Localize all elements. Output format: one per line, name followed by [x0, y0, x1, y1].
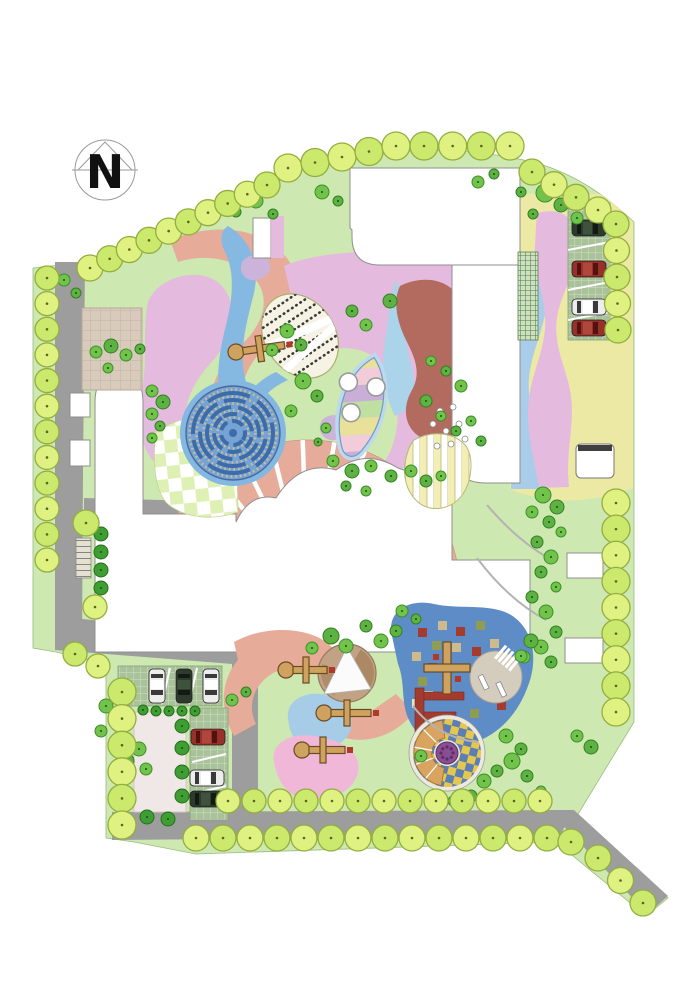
shrub-dot [365, 490, 367, 492]
shrub-dot [531, 511, 533, 513]
perimeter-tree [83, 595, 107, 619]
car-white [203, 669, 219, 703]
tree-center [287, 167, 290, 170]
tree-center [539, 800, 542, 803]
shrub [341, 481, 351, 491]
car-windshield [593, 222, 598, 234]
shrub-dot [63, 279, 65, 281]
perimeter-tree [35, 266, 59, 290]
bridge-bar [293, 667, 327, 674]
shrub [360, 620, 372, 632]
shrub [374, 634, 388, 648]
shrub-dot [159, 425, 161, 427]
tree-center [167, 230, 170, 233]
perimeter-tree [630, 890, 656, 916]
tree-center [121, 797, 124, 800]
shrub-dot [380, 640, 382, 642]
shrub [385, 470, 397, 482]
shrub-dot [181, 771, 183, 773]
tree-center [383, 800, 386, 803]
car-roof [201, 793, 210, 806]
bridge-bar [331, 710, 371, 717]
car-windshield [211, 793, 216, 805]
perimeter-tree [608, 868, 634, 894]
tree-center [615, 580, 618, 583]
shrub-dot [520, 655, 522, 657]
tree-center [509, 145, 512, 148]
red-step [455, 676, 461, 682]
perimeter-tree [410, 132, 438, 160]
shrub [584, 740, 598, 754]
tree-center [615, 554, 618, 557]
perimeter-tree [439, 132, 467, 160]
shrub [135, 344, 145, 354]
shrub-dot [95, 351, 97, 353]
perimeter-tree [294, 789, 318, 813]
shrub-dot [151, 413, 153, 415]
tree-center [305, 800, 308, 803]
tile [490, 639, 499, 648]
perimeter-tree [274, 154, 302, 182]
shrub-dot [542, 494, 544, 496]
shrub-dot [365, 625, 367, 627]
shrub-dot [540, 646, 542, 648]
tree-center [249, 837, 252, 840]
perimeter-tree [237, 825, 263, 851]
car-roof [201, 772, 210, 785]
car-roof [151, 680, 164, 689]
shrub [95, 725, 107, 737]
car-rear-window [577, 322, 581, 334]
shrub [190, 706, 200, 716]
tree-center [597, 857, 600, 860]
tree-center [89, 267, 92, 270]
perimeter-tree [453, 825, 479, 851]
shrub [571, 212, 583, 224]
perimeter-tree [35, 522, 59, 546]
red-step [329, 667, 335, 673]
perimeter-tree [108, 678, 136, 706]
perimeter-tree [73, 510, 99, 536]
tree-center [575, 196, 578, 199]
perimeter-tree [602, 567, 630, 595]
compass: N [72, 140, 138, 200]
shrub [491, 765, 503, 777]
shrub-dot [455, 430, 457, 432]
tree-center [121, 717, 124, 720]
tree-center [121, 771, 124, 774]
perimeter-tree [467, 132, 495, 160]
shrub [516, 187, 526, 197]
shrub [120, 349, 132, 361]
perimeter-tree [450, 789, 474, 813]
shrub-dot [316, 395, 318, 397]
tree-center [619, 879, 622, 882]
building-porch-2 [70, 440, 90, 466]
tree-center [46, 431, 49, 434]
perimeter-tree [603, 211, 629, 237]
tile [472, 647, 481, 656]
shrub [426, 356, 436, 366]
tree-center [227, 800, 230, 803]
shrub-dot [168, 710, 170, 712]
perimeter-tree [502, 789, 526, 813]
shrub [526, 591, 538, 603]
perimeter-tree [35, 394, 59, 418]
shrub-dot [520, 191, 522, 193]
perimeter-tree [291, 825, 317, 851]
shrub [164, 706, 174, 716]
car-red [572, 261, 606, 277]
shrub-dot [477, 181, 479, 183]
kiosk-roof [578, 445, 612, 451]
landscape-site-plan: N [0, 0, 699, 989]
shrub [104, 339, 118, 353]
shrub [528, 209, 538, 219]
tree-center [46, 533, 49, 536]
shrub [345, 464, 359, 478]
flower-dot [450, 747, 453, 750]
shrub [268, 209, 278, 219]
car-roof [202, 731, 211, 744]
shrub [390, 625, 402, 637]
car-white [149, 669, 165, 703]
shrub-dot [100, 569, 102, 571]
building-porch-1 [70, 393, 90, 417]
tree-center [46, 302, 49, 305]
shrub-dot [325, 427, 327, 429]
tile [452, 643, 461, 652]
shrub-dot [302, 380, 304, 382]
shrub [346, 305, 358, 317]
shrub-dot [231, 699, 233, 701]
shrub-dot [401, 610, 403, 612]
shrub-dot [145, 768, 147, 770]
tree-center [531, 171, 534, 174]
perimeter-tree [604, 264, 630, 290]
shrub [455, 380, 467, 392]
perimeter-tree [372, 825, 398, 851]
shrub [280, 324, 294, 338]
shrub [524, 634, 538, 648]
red-step [433, 654, 439, 660]
tree-center [121, 824, 124, 827]
tree-center [46, 507, 49, 510]
shrub-dot [317, 441, 319, 443]
shrub-dot [480, 440, 482, 442]
stepping-stone [462, 436, 468, 442]
perimeter-tree [605, 317, 631, 343]
shrub-dot [395, 630, 397, 632]
shrub-dot [300, 344, 302, 346]
stepping-stone [443, 428, 449, 434]
shrub-dot [531, 596, 533, 598]
shrub [306, 642, 318, 654]
perimeter-tree [210, 825, 236, 851]
shrub-dot [540, 571, 542, 573]
tree-center [46, 482, 49, 485]
shrub-dot [440, 415, 442, 417]
shrub-dot [100, 587, 102, 589]
flower-dot [441, 747, 444, 750]
shrub-dot [548, 521, 550, 523]
flower-dot [450, 756, 453, 759]
shrub [103, 363, 113, 373]
trellis-strip [518, 252, 538, 340]
perimeter-tree [528, 789, 552, 813]
tree-center [615, 223, 618, 226]
perimeter-tree [602, 515, 630, 543]
tree-center [357, 837, 360, 840]
perimeter-tree [264, 825, 290, 851]
shrub [94, 545, 108, 559]
tree-center [314, 161, 317, 164]
shrub-dot [345, 645, 347, 647]
tree-center [513, 800, 516, 803]
shrub [535, 487, 551, 503]
car-white [190, 770, 224, 786]
shrub-dot [75, 292, 77, 294]
perimeter-tree [301, 149, 329, 177]
perimeter-tree [602, 620, 630, 648]
perimeter-tree [35, 471, 59, 495]
shrub-dot [410, 470, 412, 472]
tree-center [615, 502, 618, 505]
shrub [441, 366, 451, 376]
perimeter-tree [216, 789, 240, 813]
tree-center [384, 837, 387, 840]
car-roof [583, 301, 592, 314]
shrub [71, 288, 81, 298]
flower-dot [445, 745, 448, 748]
tree-center [97, 665, 100, 668]
tree-center [46, 328, 49, 331]
shrub-dot [181, 795, 183, 797]
tree-center [74, 653, 77, 656]
shrub [266, 344, 278, 356]
shrub [550, 626, 562, 638]
red-step [347, 747, 353, 753]
tree-center [615, 249, 618, 252]
shrub-dot [181, 747, 183, 749]
shrub [543, 516, 555, 528]
perimeter-tree [602, 594, 630, 622]
shrub [415, 750, 427, 762]
shrub-dot [138, 748, 140, 750]
shrub [58, 274, 70, 286]
shrub [314, 438, 322, 446]
shrub-dot [142, 709, 144, 711]
shrub-dot [125, 354, 127, 356]
shrub [146, 408, 158, 420]
shrub-dot [321, 191, 323, 193]
tree-center [276, 837, 279, 840]
tree-center [615, 658, 618, 661]
tree-center [148, 239, 151, 242]
tree-center [94, 606, 97, 609]
tree-center [411, 837, 414, 840]
shrub-dot [162, 401, 164, 403]
shrub-dot [550, 556, 552, 558]
shrub-dot [496, 770, 498, 772]
maze-center [229, 429, 237, 437]
shrub [383, 294, 397, 308]
shrub [571, 730, 583, 742]
shrub [515, 650, 527, 662]
shrub [315, 185, 329, 199]
perimeter-tree [108, 758, 136, 786]
perimeter-tree [604, 238, 630, 264]
tree-center [642, 902, 645, 905]
tile [438, 621, 447, 630]
tile [432, 641, 441, 650]
shrub-dot [194, 710, 196, 712]
tree-center [546, 837, 549, 840]
shrub-dot [556, 506, 558, 508]
shrub [241, 687, 251, 697]
tree-center [121, 691, 124, 694]
perimeter-tree [35, 369, 59, 393]
car-roof [205, 680, 218, 689]
shrub [515, 743, 527, 755]
tile [456, 627, 465, 636]
red-step [286, 341, 293, 348]
tree-center [331, 800, 334, 803]
flower-dot [445, 757, 448, 760]
tree-center [121, 744, 124, 747]
shrub [411, 614, 421, 624]
tree-center [615, 528, 618, 531]
perimeter-tree [476, 789, 500, 813]
shrub-dot [505, 735, 507, 737]
perimeter-tree [424, 789, 448, 813]
shrub-dot [167, 818, 169, 820]
tree-center [246, 193, 249, 196]
shrub [90, 346, 102, 358]
slide-head [278, 662, 294, 678]
tree-center [616, 276, 619, 279]
shrub [451, 426, 461, 436]
shrub-dot [105, 705, 107, 707]
tile [418, 628, 427, 637]
tree-center [553, 183, 556, 186]
shrub [361, 486, 371, 496]
shrub [405, 465, 417, 477]
perimeter-tree [86, 654, 110, 678]
shrub-dot [550, 661, 552, 663]
shrub-dot [576, 735, 578, 737]
shrub-dot [532, 213, 534, 215]
shrub-dot [590, 746, 592, 748]
tree-center [85, 522, 88, 525]
shrub [556, 527, 566, 537]
tree-center [46, 559, 49, 562]
tree-center [253, 800, 256, 803]
car-windshield [211, 772, 216, 784]
shrub-dot [271, 349, 273, 351]
perimeter-tree [108, 784, 136, 812]
shrub [333, 196, 343, 206]
car-windshield [593, 263, 598, 275]
tree-center [330, 837, 333, 840]
tree-center [438, 837, 441, 840]
shrub [545, 656, 557, 668]
shrub-dot [530, 640, 532, 642]
tree-center [46, 277, 49, 280]
tree-center [357, 800, 360, 803]
perimeter-tree [35, 292, 59, 316]
shrub-dot [107, 367, 109, 369]
shrub-dot [470, 420, 472, 422]
shrub [175, 719, 189, 733]
tree-center [108, 257, 111, 260]
shrub [539, 605, 553, 619]
building-annex-2 [565, 638, 603, 663]
shrub [327, 455, 339, 467]
shrub [504, 753, 520, 769]
shrub-dot [430, 360, 432, 362]
tile [418, 677, 427, 686]
building-topleft [253, 218, 271, 258]
shrub [94, 563, 108, 577]
shrub [140, 763, 152, 775]
tree-center [266, 184, 269, 187]
shrub [360, 319, 372, 331]
shrub-dot [545, 611, 547, 613]
tree-center [519, 837, 522, 840]
car-rear-window [195, 793, 199, 805]
perimeter-tree [372, 789, 396, 813]
shrub-dot [483, 780, 485, 782]
car-white [572, 299, 606, 315]
perimeter-tree [398, 789, 422, 813]
perimeter-tree [507, 825, 533, 851]
shrub-dot [100, 551, 102, 553]
stepping-stone [430, 421, 436, 427]
shrub-dot [151, 437, 153, 439]
shrub-dot [245, 691, 247, 693]
car-rear-window [205, 674, 217, 678]
shrub [531, 536, 543, 548]
climb-post [344, 700, 350, 726]
cross-bar [424, 664, 470, 672]
car-rear-window [577, 263, 581, 275]
tree-center [409, 800, 412, 803]
stepping-stone [434, 443, 440, 449]
perimeter-tree [108, 811, 136, 839]
shrub-dot [311, 647, 313, 649]
shrub [521, 770, 533, 782]
car-roof [583, 322, 592, 335]
tree-center [465, 837, 468, 840]
car-rear-window [196, 731, 200, 743]
car-windshield [151, 690, 163, 695]
shrub [339, 639, 353, 653]
shrub [155, 421, 165, 431]
tile [476, 621, 485, 630]
tree-center [615, 711, 618, 714]
tree-center [222, 837, 225, 840]
car-red [572, 320, 606, 336]
tree-center [615, 632, 618, 635]
shrub-dot [389, 300, 391, 302]
shrub-dot [555, 586, 557, 588]
car-windshield [593, 322, 598, 334]
car-rear-window [178, 674, 190, 678]
shrub [147, 433, 157, 443]
site-plan-page: N [0, 0, 699, 989]
shrub-dot [181, 710, 183, 712]
